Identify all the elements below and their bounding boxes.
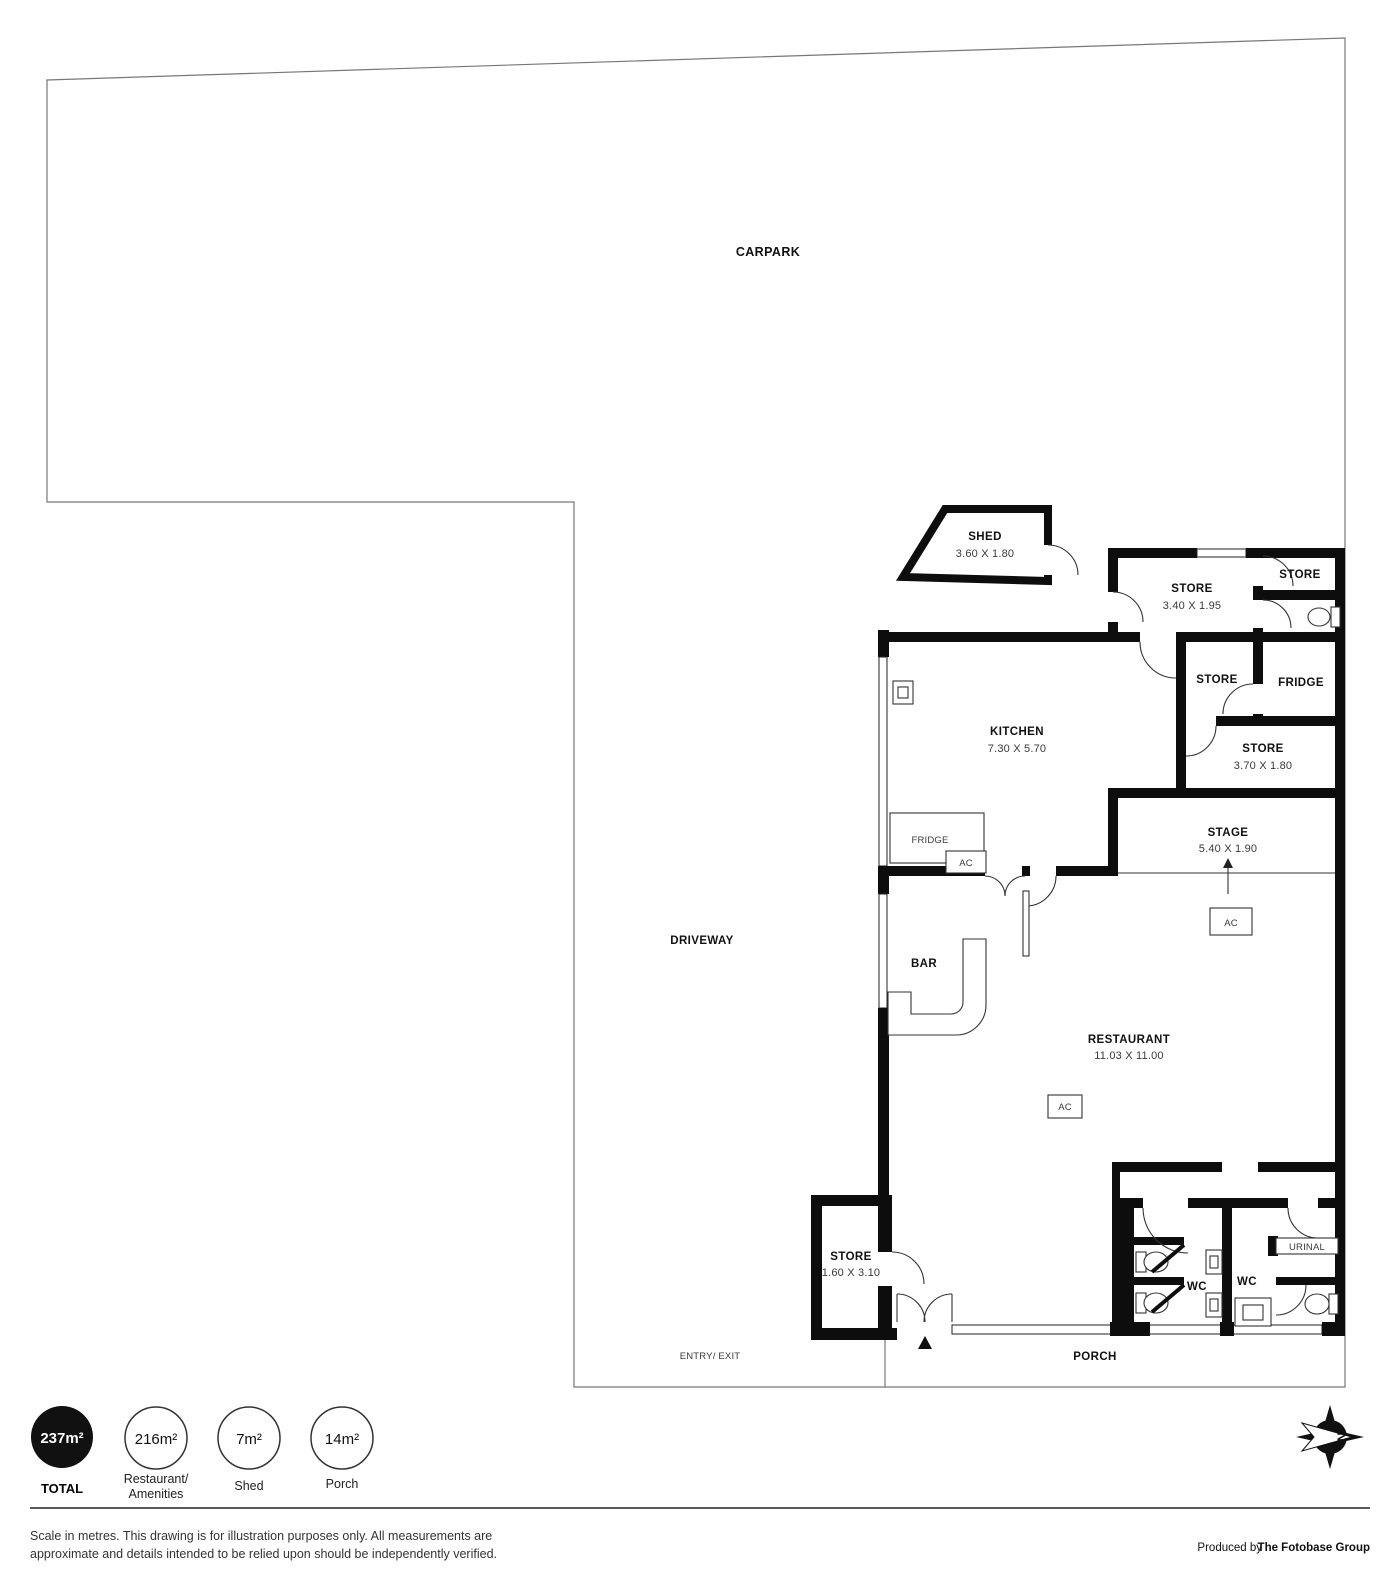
store-mid-label: STORE <box>1196 674 1237 686</box>
kitchen-label: KITCHEN <box>990 726 1044 738</box>
store-bottom-label: STORE <box>830 1251 871 1263</box>
store-right-dims: 3.70 X 1.80 <box>1234 760 1292 772</box>
shed-dims: 3.60 X 1.80 <box>956 548 1014 560</box>
stage-arrow <box>1223 858 1233 868</box>
legend-porch-label: Porch <box>326 1477 359 1491</box>
driveway-label: DRIVEWAY <box>670 935 734 947</box>
legend-shed-value: 7m² <box>236 1431 262 1448</box>
stage-edge <box>1118 858 1335 894</box>
shed: SHED 3.60 X 1.80 <box>903 509 1078 581</box>
restaurant-label: RESTAURANT <box>1088 1034 1170 1046</box>
legend-total-value: 237m² <box>40 1430 83 1447</box>
stage-dims: 5.40 X 1.90 <box>1199 843 1257 855</box>
bar-counter <box>888 939 986 1035</box>
ac-kitchen-label: AC <box>959 858 973 869</box>
fridge-appliance-label: FRIDGE <box>911 835 948 846</box>
store-top-dims: 3.40 X 1.95 <box>1163 600 1221 612</box>
credit-name: The Fotobase Group <box>1258 1542 1370 1554</box>
ac-restaurant-label: AC <box>1058 1102 1072 1113</box>
porch-label: PORCH <box>1073 1351 1117 1363</box>
footer: Scale in metres. This drawing is for ill… <box>30 1508 1370 1561</box>
wc-left-label: WC <box>1187 1281 1207 1293</box>
kitchen-dims: 7.30 X 5.70 <box>988 743 1046 755</box>
store-right-label: STORE <box>1242 743 1283 755</box>
property-boundary <box>47 38 1345 1387</box>
bar-label: BAR <box>911 958 937 970</box>
stage-label: STAGE <box>1208 827 1249 839</box>
legend: 237m² TOTAL 216m² Restaurant/ Amenities … <box>31 1406 373 1501</box>
legend-restaurant-label-1: Restaurant/ <box>124 1472 189 1486</box>
legend-restaurant-value: 216m² <box>135 1431 178 1448</box>
shed-label: SHED <box>968 531 1002 543</box>
urinal-label: URINAL <box>1289 1242 1325 1253</box>
floor-plan-page: CARPARK DRIVEWAY SHED 3.60 X 1.80 <box>0 0 1400 1573</box>
restaurant-dims: 11.03 X 11.00 <box>1094 1050 1163 1062</box>
sink-2 <box>1206 1293 1222 1317</box>
compass-icon: N <box>1296 1405 1364 1469</box>
fridge-room-label: FRIDGE <box>1278 677 1324 689</box>
entry-exit-label: ENTRY/ EXIT <box>680 1351 741 1362</box>
store-top-label: STORE <box>1171 583 1212 595</box>
store-top-right-label: STORE <box>1279 569 1320 581</box>
ac-stage-label: AC <box>1224 918 1238 929</box>
urinal: URINAL <box>1276 1238 1338 1254</box>
compass-north-letter: N <box>1335 1432 1350 1441</box>
legend-restaurant-label-2: Amenities <box>129 1487 184 1501</box>
legend-total-label: TOTAL <box>41 1481 83 1496</box>
entry-arrow <box>918 1336 932 1349</box>
legend-porch-value: 14m² <box>325 1431 359 1448</box>
sink-1 <box>1206 1250 1222 1274</box>
legend-shed-label: Shed <box>234 1479 263 1493</box>
basin-wc-right <box>1235 1298 1271 1326</box>
credit-prefix: Produced by <box>1197 1542 1262 1554</box>
disclaimer-line-1: Scale in metres. This drawing is for ill… <box>30 1529 492 1543</box>
carpark-label: CARPARK <box>736 245 800 259</box>
wc-right-label: WC <box>1237 1276 1257 1288</box>
floor-plan-svg: CARPARK DRIVEWAY SHED 3.60 X 1.80 <box>0 0 1400 1573</box>
walls <box>811 548 1345 1340</box>
toilet-wc-right <box>1305 1294 1338 1314</box>
store-bottom-dims: 1.60 X 3.10 <box>822 1267 880 1279</box>
toilet-top-right <box>1308 607 1340 627</box>
disclaimer-line-2: approximate and details intended to be r… <box>30 1547 497 1561</box>
